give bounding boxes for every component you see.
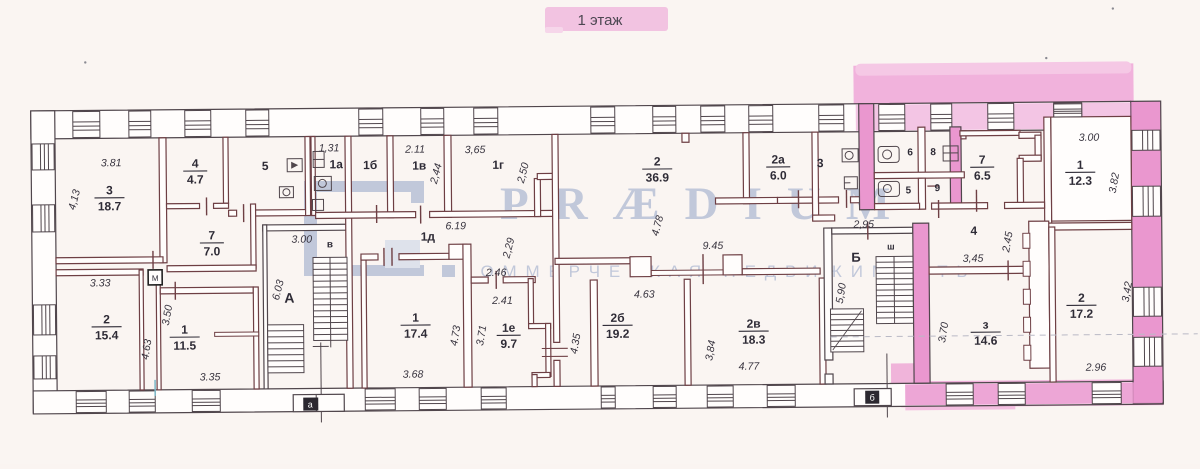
svg-text:7: 7	[979, 153, 986, 167]
svg-text:14.6: 14.6	[974, 334, 998, 348]
svg-text:5: 5	[262, 159, 269, 173]
svg-text:2б: 2б	[610, 311, 624, 325]
svg-text:2,95: 2,95	[852, 219, 874, 231]
svg-text:1г: 1г	[492, 158, 504, 172]
svg-text:4: 4	[970, 224, 977, 238]
svg-text:9: 9	[935, 183, 941, 194]
svg-text:1: 1	[412, 311, 419, 325]
svg-text:5: 5	[906, 185, 912, 196]
svg-text:а: а	[308, 400, 313, 410]
svg-text:3,65: 3,65	[465, 144, 486, 156]
svg-text:4: 4	[192, 156, 199, 170]
svg-text:3.00: 3.00	[1079, 132, 1100, 144]
svg-text:4.77: 4.77	[739, 361, 761, 373]
svg-text:2.41: 2.41	[491, 295, 513, 307]
svg-text:3: 3	[106, 183, 113, 197]
svg-text:4.63: 4.63	[634, 289, 655, 301]
svg-text:18.3: 18.3	[742, 333, 766, 347]
svg-text:1б: 1б	[363, 158, 377, 172]
svg-text:2.96: 2.96	[1085, 362, 1107, 374]
svg-text:17.2: 17.2	[1070, 307, 1094, 321]
svg-text:9.45: 9.45	[703, 240, 724, 252]
svg-text:8: 8	[930, 147, 936, 158]
svg-text:1а: 1а	[329, 157, 343, 171]
svg-text:15.4: 15.4	[95, 328, 119, 342]
svg-text:А: А	[284, 290, 294, 306]
svg-text:1: 1	[1077, 158, 1084, 172]
svg-text:з: з	[983, 318, 989, 332]
svg-text:6.19: 6.19	[445, 220, 466, 232]
svg-text:1: 1	[181, 323, 188, 337]
svg-text:2: 2	[654, 154, 661, 168]
svg-text:3.68: 3.68	[403, 369, 424, 381]
svg-text:1е: 1е	[502, 321, 516, 335]
svg-text:Б: Б	[851, 250, 860, 265]
svg-text:6.5: 6.5	[974, 169, 991, 183]
svg-text:2.11: 2.11	[404, 144, 425, 156]
svg-text:1 этаж: 1 этаж	[578, 12, 623, 29]
svg-text:1,31: 1,31	[319, 142, 340, 154]
svg-text:7: 7	[208, 228, 215, 242]
svg-text:ш: ш	[887, 241, 895, 251]
svg-text:6: 6	[907, 147, 913, 158]
svg-text:2в: 2в	[746, 317, 760, 331]
svg-text:2: 2	[1078, 291, 1085, 305]
svg-text:3.33: 3.33	[90, 277, 111, 289]
svg-text:3: 3	[817, 156, 824, 170]
svg-text:2: 2	[103, 312, 110, 326]
svg-text:18.7: 18.7	[98, 199, 122, 213]
svg-text:в: в	[327, 239, 333, 250]
svg-text:4.7: 4.7	[187, 172, 204, 186]
svg-text:1в: 1в	[412, 159, 426, 173]
svg-text:3.00: 3.00	[291, 234, 312, 246]
svg-text:1д: 1д	[421, 229, 436, 243]
svg-text:12.3: 12.3	[1069, 174, 1093, 188]
svg-text:36.9: 36.9	[646, 170, 670, 184]
svg-text:М: М	[152, 274, 159, 283]
svg-text:2а: 2а	[771, 152, 785, 166]
svg-text:11.5: 11.5	[173, 339, 196, 353]
svg-text:19.2: 19.2	[606, 327, 630, 341]
svg-text:17.4: 17.4	[404, 327, 428, 341]
svg-text:2.46: 2.46	[485, 267, 507, 279]
svg-text:б: б	[870, 393, 875, 403]
svg-text:7.0: 7.0	[204, 244, 221, 258]
svg-text:3.35: 3.35	[200, 371, 221, 383]
svg-text:9.7: 9.7	[500, 337, 517, 351]
svg-text:6.0: 6.0	[770, 168, 787, 182]
svg-text:3,45: 3,45	[963, 253, 984, 265]
svg-text:3.81: 3.81	[101, 157, 122, 169]
